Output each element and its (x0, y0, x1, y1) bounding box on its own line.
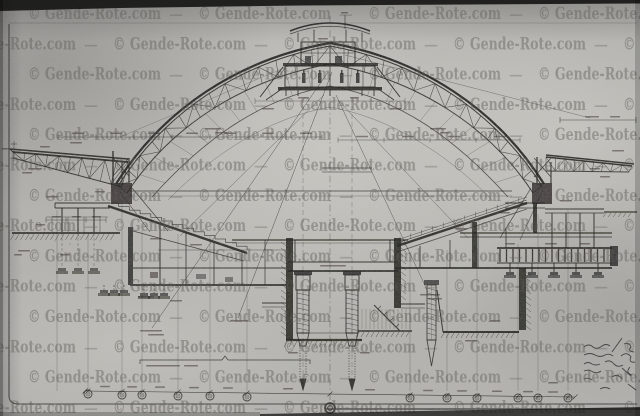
scanned-drawing-photo: © Gende-Rote.com—© Gende-Rote.com—© Gend… (0, 0, 640, 416)
film-grain (0, 0, 640, 416)
arena-cross-section-drawing: © Gende-Rote.com—© Gende-Rote.com—© Gend… (0, 0, 640, 416)
